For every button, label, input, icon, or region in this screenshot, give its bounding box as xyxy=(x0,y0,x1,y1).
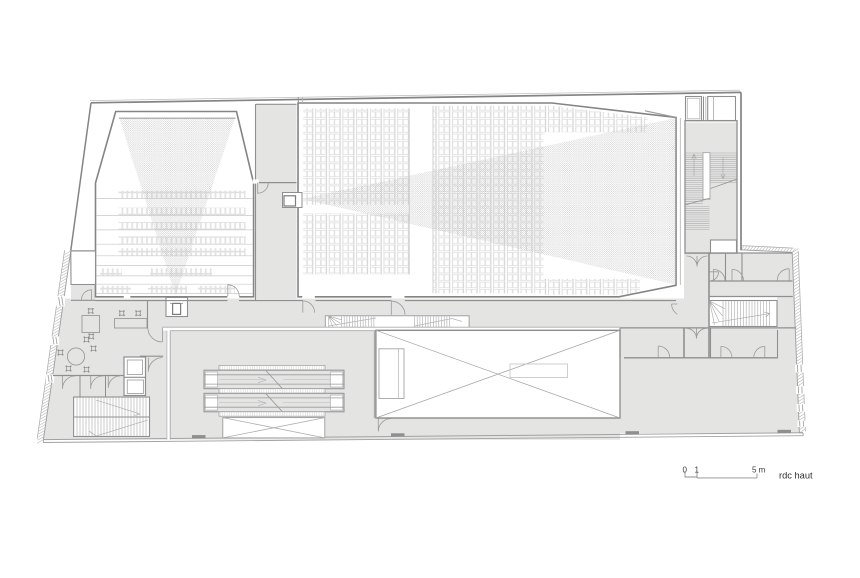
svg-text:rdc haut: rdc haut xyxy=(779,471,813,481)
svg-text:5 m: 5 m xyxy=(752,466,766,475)
svg-text:0: 0 xyxy=(683,466,688,475)
svg-text:1: 1 xyxy=(695,466,700,475)
